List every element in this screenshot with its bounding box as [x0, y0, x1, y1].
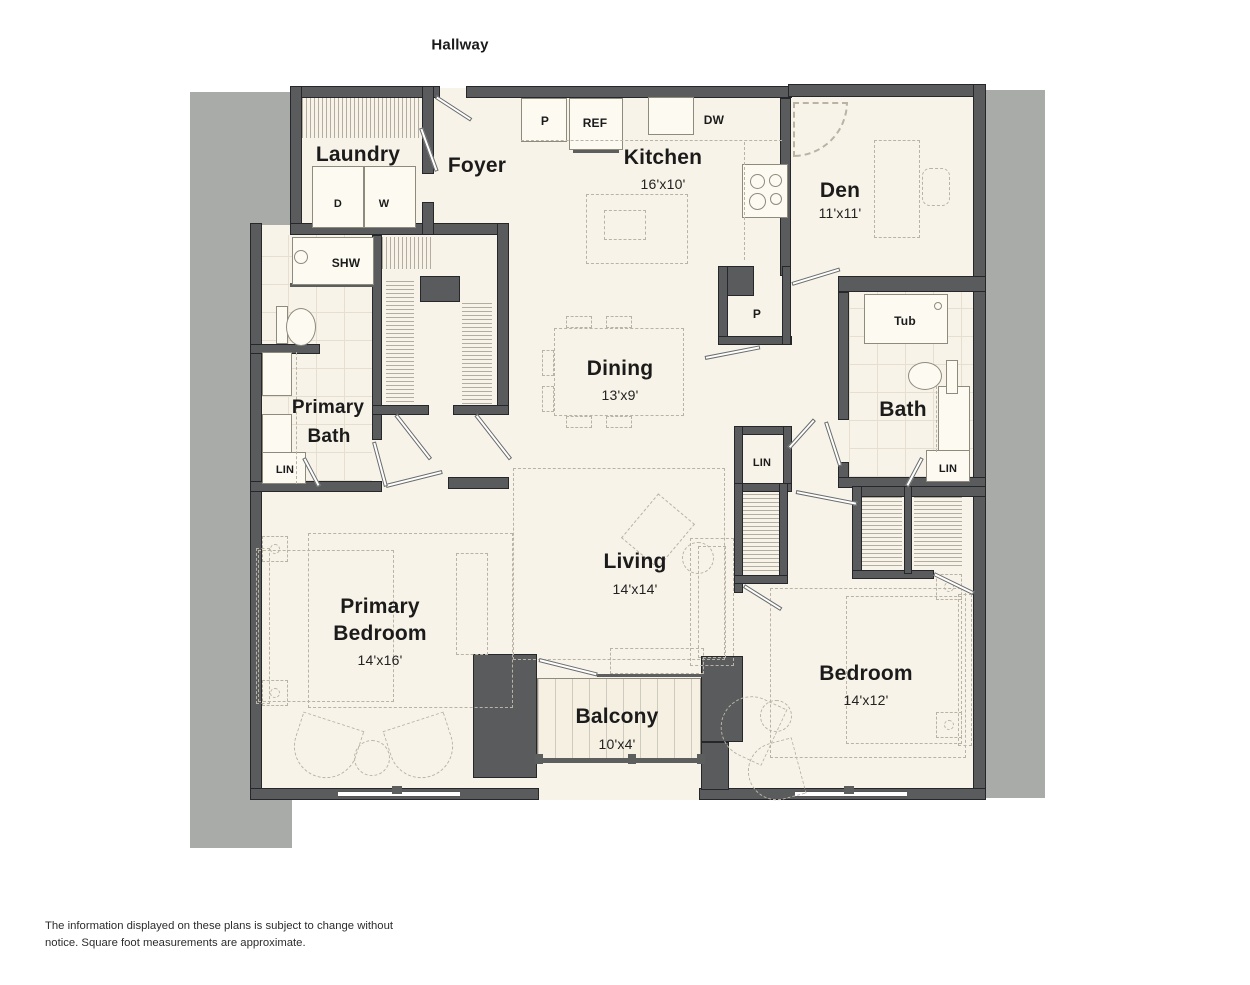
closet-hatch: [302, 98, 420, 138]
side-table: [682, 542, 714, 574]
room-label-living: Living: [603, 550, 666, 574]
closet-hatch: [386, 278, 414, 406]
closet-hatch: [862, 494, 902, 566]
linen1-label: LIN: [276, 464, 294, 476]
room-label-primary-bath-1: Primary: [292, 397, 364, 419]
wall-segment: [734, 575, 788, 584]
railing-post: [628, 754, 636, 764]
wall-segment: [779, 483, 788, 583]
fan-blade: [270, 688, 280, 698]
wall-segment: [838, 292, 849, 420]
room-dims-primary-bedroom: 14'x16': [358, 652, 403, 668]
wall-segment: [858, 486, 986, 497]
wall-segment: [497, 223, 509, 415]
shadow-zone-right: [985, 90, 1045, 798]
balcony-railing: [537, 758, 703, 763]
room-label-kitchen: Kitchen: [624, 146, 702, 170]
den-desk: [874, 140, 920, 238]
shower-label: SHW: [332, 256, 361, 270]
room-label-laundry: Laundry: [316, 143, 400, 167]
burner: [769, 174, 782, 187]
dining-chair: [566, 416, 592, 428]
pantry2-label: P: [753, 307, 761, 321]
round-table: [760, 700, 792, 732]
tub-label: Tub: [894, 314, 916, 328]
burner: [749, 193, 766, 210]
railing-post: [697, 754, 705, 764]
closet-hatch: [378, 237, 432, 269]
hallway-label: Hallway: [431, 37, 488, 54]
dryer-box: [312, 166, 364, 228]
fridge-lip: [573, 150, 619, 153]
kitchen-sink: [648, 97, 694, 135]
room-dims-dining: 13'x9': [602, 387, 639, 403]
window-marker: [392, 786, 402, 794]
wall-segment: [852, 570, 934, 579]
wall-segment: [290, 86, 440, 98]
room-dims-living: 14'x14': [613, 581, 658, 597]
room-label-dining: Dining: [587, 357, 654, 381]
burner: [750, 174, 765, 189]
wall-segment: [422, 202, 434, 235]
wall-segment: [701, 742, 729, 790]
wall-segment: [973, 84, 986, 800]
room-dims-den: 11'x11': [819, 205, 862, 221]
range: [742, 164, 788, 218]
burner: [770, 193, 782, 205]
dryer-label: D: [334, 198, 342, 210]
room-label-bath: Bath: [879, 398, 926, 422]
closet-hatch: [462, 300, 492, 412]
room-label-primary-bedroom-1: Primary: [340, 595, 420, 619]
kitchen-counter: [521, 140, 782, 141]
dining-chair: [566, 316, 592, 328]
vanity-counter: [936, 386, 937, 452]
linen3-label: LIN: [939, 463, 957, 475]
room-label-primary-bedroom-2: Bedroom: [333, 622, 427, 646]
washer-box: [364, 166, 416, 228]
wall-segment: [290, 86, 302, 235]
wall-segment: [453, 405, 509, 415]
wall-segment: [372, 405, 429, 415]
closet-hatch: [914, 494, 962, 566]
floor-plan-page: Hallway Laundry Foyer Kitchen 16'x10' De…: [0, 0, 1250, 985]
balcony-window: [597, 674, 703, 677]
room-label-bedroom: Bedroom: [819, 662, 913, 686]
room-label-den: Den: [820, 179, 860, 203]
room-dims-kitchen: 16'x10': [641, 176, 686, 192]
pantry-label: P: [541, 114, 549, 128]
wall-segment: [448, 477, 509, 489]
wall-segment: [904, 486, 912, 574]
dining-chair: [606, 416, 632, 428]
wall-segment: [788, 84, 986, 97]
railing-post: [535, 754, 543, 764]
toilet-tank: [946, 360, 958, 394]
room-label-foyer: Foyer: [448, 154, 506, 178]
dishwasher-label: DW: [704, 113, 724, 127]
wall-segment: [782, 266, 791, 345]
toilet-bowl: [286, 308, 316, 346]
wall-segment: [250, 223, 262, 800]
fan-blade: [944, 720, 954, 730]
wall-segment: [852, 486, 862, 578]
room-dims-bedroom: 14'x12': [844, 692, 889, 708]
room-label-primary-bath-2: Bath: [307, 426, 350, 448]
tub-drain: [934, 302, 942, 310]
island-sink: [604, 210, 646, 240]
shower-head: [294, 250, 308, 264]
wall-segment: [466, 86, 792, 98]
washer-label: W: [379, 198, 390, 210]
wall-segment: [718, 266, 728, 345]
vanity-sink: [262, 352, 292, 396]
dining-chair: [542, 350, 554, 376]
closet-hatch: [741, 491, 779, 571]
linen2-label: LIN: [753, 457, 771, 469]
room-dims-balcony: 10'x4': [599, 736, 636, 752]
dresser: [456, 553, 488, 655]
room-label-balcony: Balcony: [575, 705, 658, 729]
fan-blade: [270, 544, 280, 554]
tv-console: [610, 648, 704, 674]
wall-segment: [838, 276, 986, 292]
den-chair: [922, 168, 950, 206]
window-marker: [844, 786, 854, 794]
disclaimer-text: The information displayed on these plans…: [45, 918, 393, 952]
dining-chair: [542, 386, 554, 412]
vanity-sink: [938, 386, 970, 452]
kitchen-counter: [744, 142, 745, 260]
wall-segment: [718, 336, 792, 345]
wall-segment: [420, 276, 460, 302]
fridge-label: REF: [583, 116, 608, 130]
round-table: [354, 740, 390, 776]
dining-chair: [606, 316, 632, 328]
